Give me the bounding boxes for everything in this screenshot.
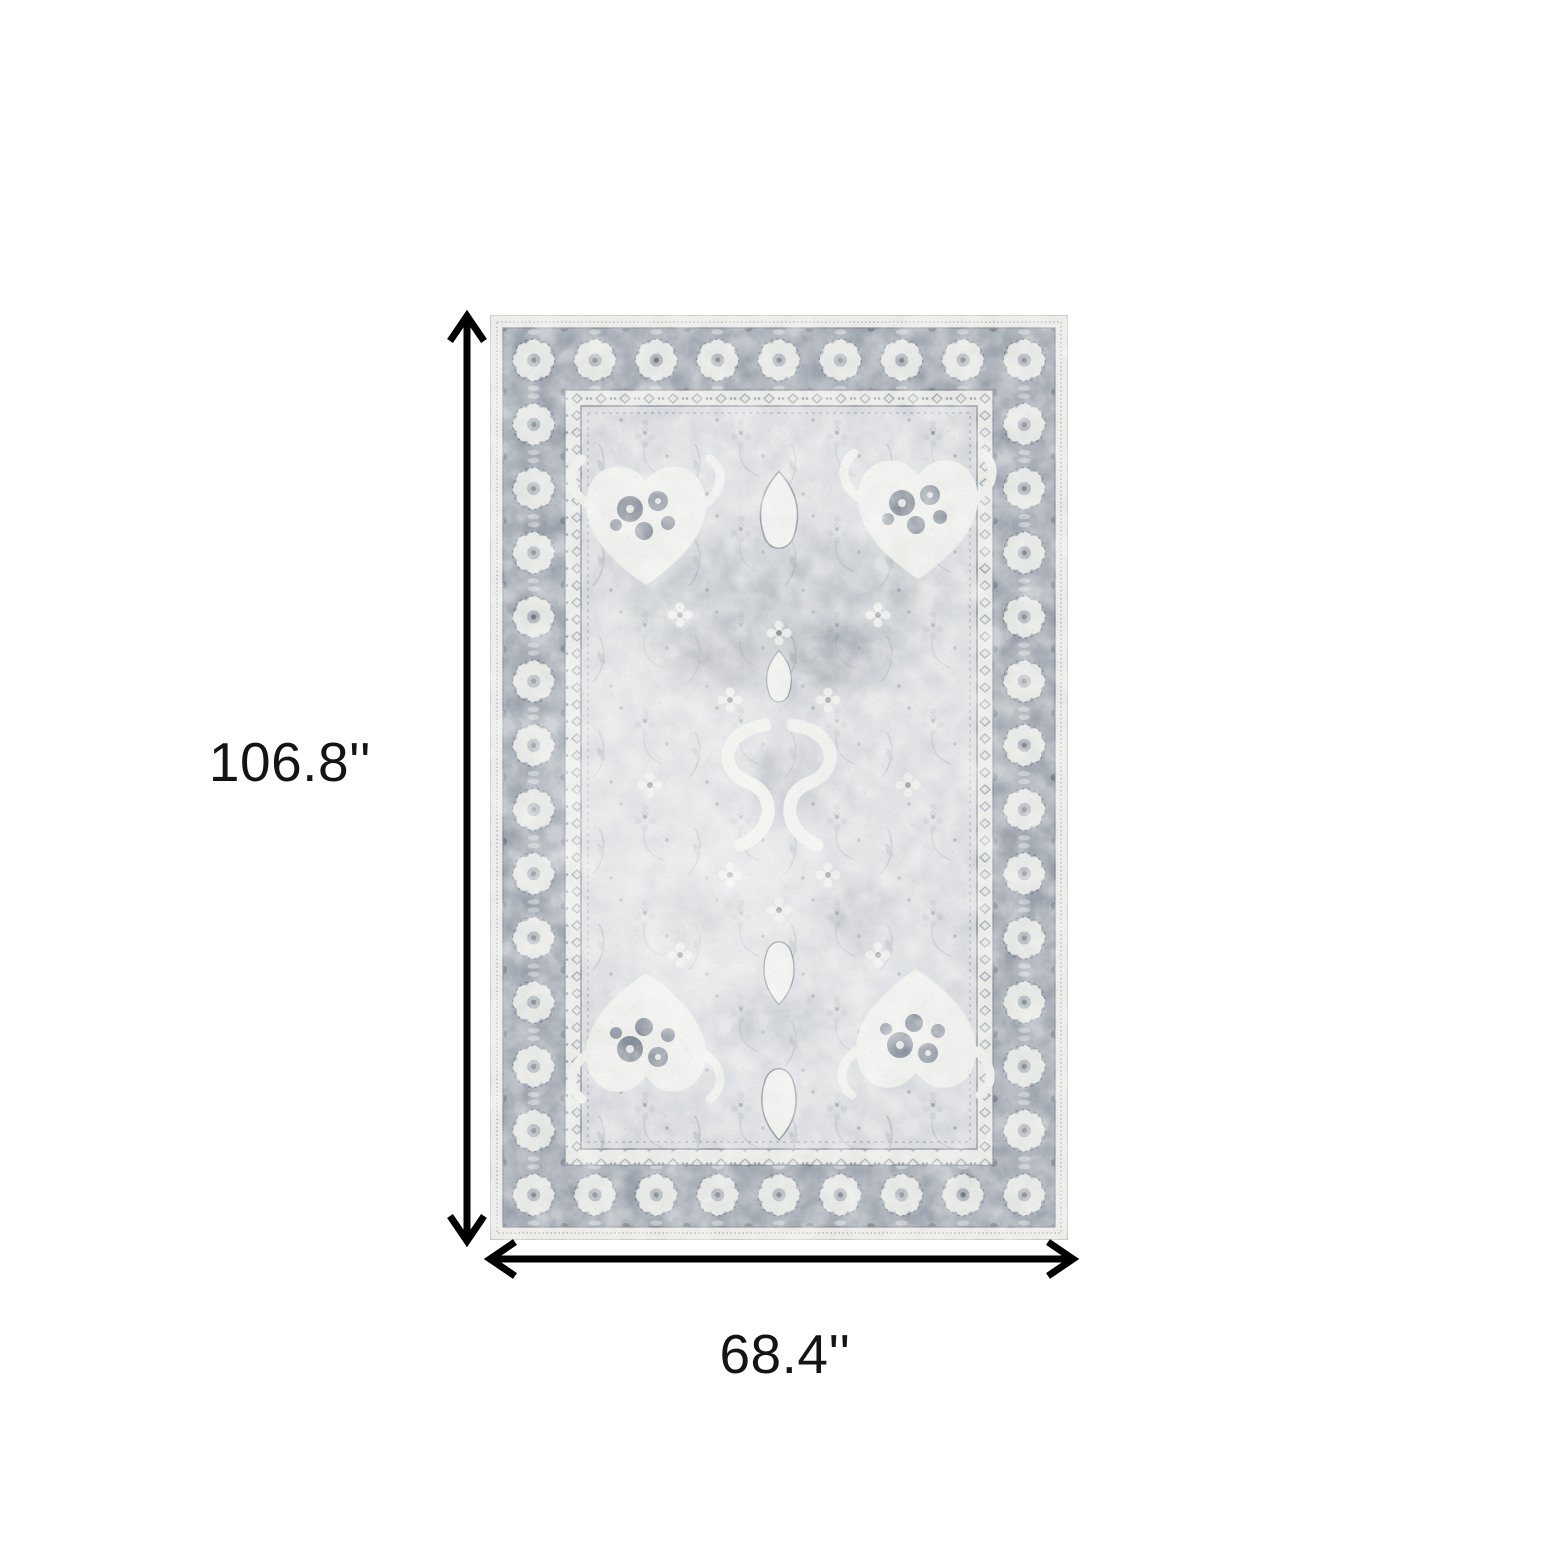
rug-image [490,315,1068,1240]
width-dimension-label: 68.4'' [645,1322,925,1386]
width-arrow-line [490,1242,1073,1276]
height-dimension-arrow [437,308,497,1248]
product-dimension-diagram: 106.8'' 68.4'' [0,0,1560,1560]
height-dimension-label: 106.8'' [150,730,430,794]
width-dimension-arrow [483,1232,1083,1288]
height-arrow-line [450,316,484,1241]
